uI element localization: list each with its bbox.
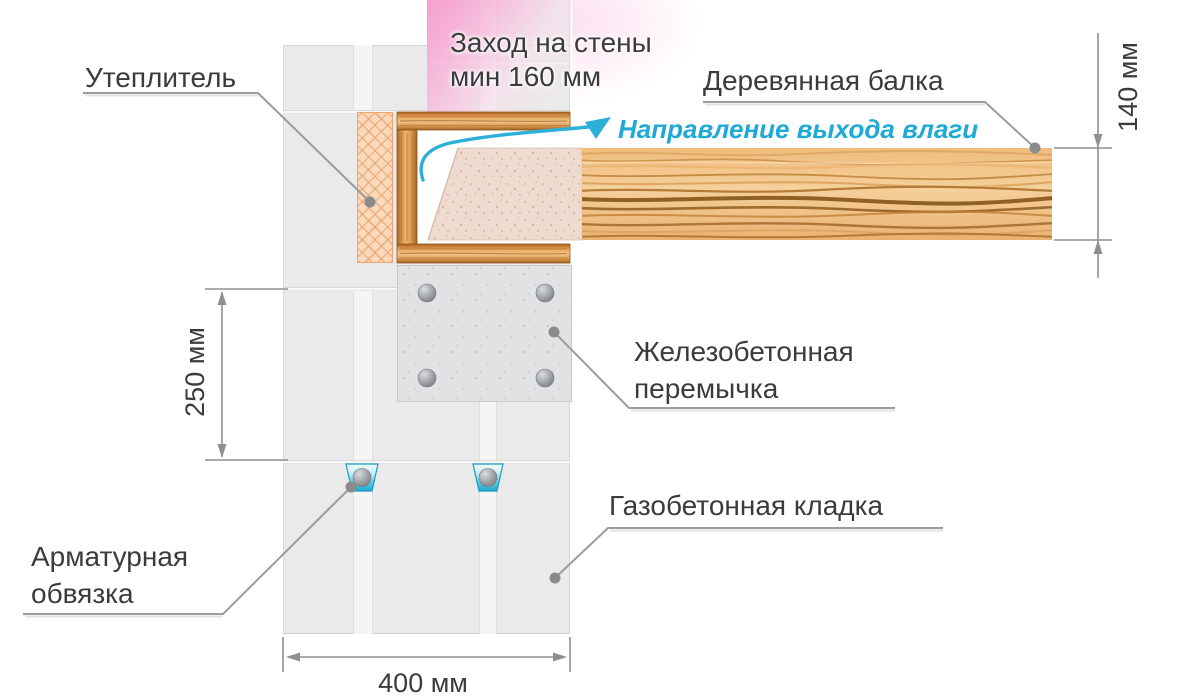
bearing-note: Заход на стены мин 160 мм — [450, 26, 652, 94]
concrete-lintel — [397, 265, 572, 402]
bearing-note-line1: Заход на стены — [450, 26, 652, 60]
masonry-joint — [283, 287, 397, 291]
insulation-label: Утеплитель — [85, 61, 236, 95]
moisture-direction-label: Направление выхода влаги — [618, 112, 978, 146]
masonry-label: Газобетонная кладка — [609, 489, 883, 523]
bearing-note-line2: мин 160 мм — [450, 60, 652, 94]
dimension-140mm: 140 мм — [1113, 22, 1143, 152]
construction-detail-diagram: Утеплитель Заход на стены мин 160 мм Дер… — [0, 0, 1200, 696]
insulation-strip — [357, 112, 393, 263]
dimension-400mm: 400 мм — [358, 668, 488, 696]
beam-pocket — [417, 130, 570, 244]
dimension-250mm: 250 мм — [180, 307, 210, 437]
masonry-joint — [283, 460, 570, 464]
masonry-joint — [479, 402, 497, 634]
wooden-beam-label: Деревянная балка — [703, 64, 944, 98]
concrete-lintel-label: Железобетонная перемычка — [634, 333, 854, 407]
rebar-tie-label: Арматурная обвязка — [31, 538, 188, 612]
masonry-joint — [353, 45, 373, 110]
